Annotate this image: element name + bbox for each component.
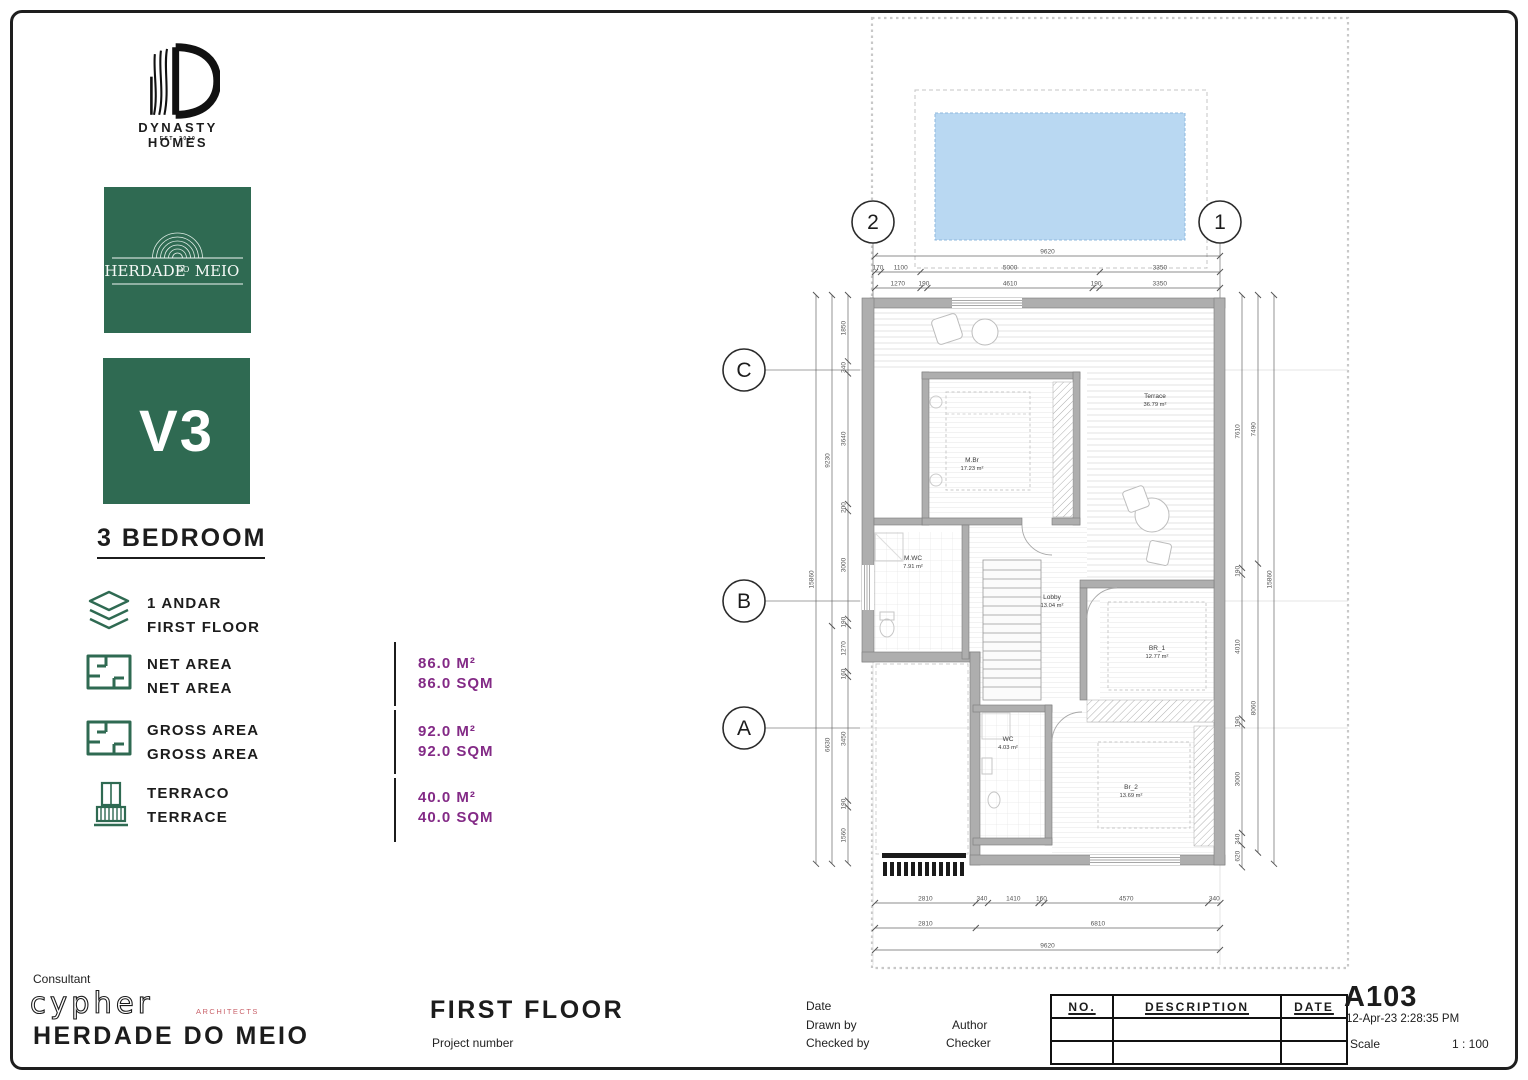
room-name: WC bbox=[1003, 736, 1014, 743]
dim-label: 1410 bbox=[1006, 896, 1021, 903]
grid-label-b: B bbox=[737, 590, 751, 613]
room-area: 7.91 m² bbox=[903, 564, 923, 570]
net-area-label-en: NET AREA bbox=[147, 677, 233, 701]
room-area: 13.69 m² bbox=[1120, 793, 1143, 799]
dim-label: 200 bbox=[841, 502, 848, 513]
room-area: 4.03 m² bbox=[998, 745, 1018, 751]
room-name: Br_2 bbox=[1124, 784, 1138, 791]
revision-row bbox=[1051, 1018, 1347, 1041]
room-name: M.WC bbox=[904, 555, 922, 562]
floor-label-pt: 1 ANDAR bbox=[147, 592, 222, 616]
dim-label: 170 bbox=[873, 265, 884, 272]
dim-label: 15860 bbox=[1267, 570, 1274, 588]
terrace-m2: 40.0 M² bbox=[418, 788, 476, 808]
room-area: 36.79 m² bbox=[1144, 402, 1167, 408]
room-name: Terrace bbox=[1144, 393, 1166, 400]
date-label: Date bbox=[806, 999, 831, 1013]
dim-label: 3000 bbox=[841, 557, 848, 572]
unit-type-block: 3 BEDROOM bbox=[97, 524, 266, 559]
drawing-sheet: DYNASTY HOMES EST. 2020 HERDADE DO MEIO … bbox=[0, 0, 1528, 1080]
unit-type-underline bbox=[97, 557, 265, 559]
grid-label-c: C bbox=[736, 359, 751, 382]
net-area-label-pt: NET AREA bbox=[147, 653, 233, 677]
void-outline bbox=[876, 664, 968, 854]
project-number-label: Project number bbox=[432, 1036, 513, 1050]
revision-row bbox=[1051, 1041, 1347, 1064]
dim-label: 1270 bbox=[841, 641, 848, 656]
dim-label: 1270 bbox=[891, 281, 906, 288]
terrace-label-en: TERRACE bbox=[147, 806, 228, 830]
floor-label-en: FIRST FLOOR bbox=[147, 616, 260, 640]
balcony-icon bbox=[92, 780, 130, 830]
net-area-m2: 86.0 M² bbox=[418, 654, 476, 674]
sheet-number: A103 bbox=[1344, 981, 1417, 1014]
floorplan-icon bbox=[84, 716, 134, 760]
room-area: 13.04 m² bbox=[1041, 603, 1064, 609]
dim-label: 3350 bbox=[1153, 265, 1168, 272]
dim-label: 7490 bbox=[1251, 422, 1258, 437]
checked-by-value: Checker bbox=[946, 1036, 991, 1050]
drawn-by-value: Author bbox=[952, 1018, 987, 1032]
dim-label: 160 bbox=[841, 668, 848, 679]
dim-label: 15860 bbox=[809, 570, 816, 588]
dim-label: 5000 bbox=[1003, 265, 1018, 272]
gross-area-sqm: 92.0 SQM bbox=[418, 742, 494, 762]
consultant-sub: ARCHITECTS bbox=[196, 1007, 258, 1016]
dim-label: 190 bbox=[841, 798, 848, 809]
dim-label: 2810 bbox=[918, 921, 933, 928]
terrace-divider bbox=[394, 778, 396, 842]
scale-value: 1 : 100 bbox=[1452, 1037, 1489, 1051]
dim-label: 190 bbox=[841, 616, 848, 627]
dim-label: 190 bbox=[1091, 281, 1102, 288]
room-area: 17.23 m² bbox=[961, 466, 984, 472]
room-area: 12.77 m² bbox=[1146, 654, 1169, 660]
room-name: M.Br bbox=[965, 457, 980, 464]
print-timestamp: 12-Apr-23 2:28:35 PM bbox=[1346, 1013, 1459, 1025]
logo-word-herdade: HERDADE bbox=[104, 262, 185, 280]
dim-label: 160 bbox=[1036, 896, 1047, 903]
revision-table: NO. DESCRIPTION DATE bbox=[1050, 994, 1348, 1065]
rev-desc-header: DESCRIPTION bbox=[1113, 995, 1281, 1018]
dim-label: 340 bbox=[976, 896, 987, 903]
vent-grille bbox=[882, 853, 966, 876]
dim-label: 1560 bbox=[841, 828, 848, 843]
stairs bbox=[983, 560, 1041, 700]
dim-label: 8060 bbox=[1251, 700, 1258, 715]
grid-label-2: 2 bbox=[867, 211, 879, 234]
gross-area-m2: 92.0 M² bbox=[418, 722, 476, 742]
terrace-label-pt: TERRACO bbox=[147, 782, 230, 806]
room-name: BR_1 bbox=[1149, 645, 1166, 652]
logo-word-do: DO bbox=[177, 265, 190, 274]
dynasty-homes-logo-icon bbox=[140, 42, 220, 120]
dim-label: 4570 bbox=[1119, 896, 1134, 903]
grid-label-a: A bbox=[737, 717, 751, 740]
footer-view-name: FIRST FLOOR bbox=[430, 996, 624, 1025]
dim-label: 340 bbox=[1209, 896, 1220, 903]
unit-badge: V3 bbox=[103, 358, 250, 504]
dim-label: 340 bbox=[841, 362, 848, 373]
gross-area-label-en: GROSS AREA bbox=[147, 743, 259, 767]
dim-label: 9620 bbox=[1040, 943, 1055, 950]
consultant-logo: cypher ARCHITECTS bbox=[28, 986, 258, 1024]
dim-label: 340 bbox=[1235, 833, 1242, 844]
rev-date-header: DATE bbox=[1281, 995, 1347, 1018]
gross-area-label-pt: GROSS AREA bbox=[147, 719, 259, 743]
dim-label: 2810 bbox=[918, 896, 933, 903]
dim-label: 3350 bbox=[1153, 281, 1168, 288]
consultant-label: Consultant bbox=[33, 972, 90, 986]
dim-label: 4010 bbox=[1235, 639, 1242, 654]
grid-label-1: 1 bbox=[1214, 211, 1226, 234]
dim-label: 190 bbox=[919, 281, 930, 288]
layers-icon bbox=[86, 588, 132, 636]
dim-label: 3000 bbox=[1235, 771, 1242, 786]
revision-header-row: NO. DESCRIPTION DATE bbox=[1051, 995, 1347, 1018]
dim-label: 3450 bbox=[841, 731, 848, 746]
dim-label: 9620 bbox=[1040, 249, 1055, 256]
development-logo: HERDADE DO MEIO bbox=[104, 187, 251, 333]
dim-label: 6630 bbox=[825, 737, 832, 752]
development-logo-art: HERDADE DO MEIO bbox=[104, 187, 251, 333]
dim-label: 620 bbox=[1235, 850, 1242, 861]
unit-type-heading: 3 BEDROOM bbox=[97, 524, 266, 553]
floor-plan: Terrace 36.79 m² M.Br 17.23 m² M.WC 7.91… bbox=[700, 10, 1360, 985]
dim-label: 4610 bbox=[1003, 281, 1018, 288]
floorplan-icon bbox=[84, 650, 134, 694]
footer-project-name: HERDADE DO MEIO bbox=[33, 1022, 309, 1051]
dim-label: 6810 bbox=[1091, 921, 1106, 928]
dim-label: 9230 bbox=[825, 453, 832, 468]
dim-label: 7610 bbox=[1235, 424, 1242, 439]
brand-established: EST. 2020 bbox=[118, 136, 238, 142]
logo-word-meio: MEIO bbox=[195, 262, 240, 280]
rev-no-header: NO. bbox=[1051, 995, 1113, 1018]
dim-label: 190 bbox=[1235, 565, 1242, 576]
terrace-sqm: 40.0 SQM bbox=[418, 808, 494, 828]
consultant-name: cypher bbox=[30, 986, 154, 1020]
net-area-sqm: 86.0 SQM bbox=[418, 674, 494, 694]
pool bbox=[935, 113, 1185, 240]
dim-label: 3640 bbox=[841, 431, 848, 446]
dim-label: 1850 bbox=[841, 321, 848, 336]
drawn-by-label: Drawn by bbox=[806, 1018, 857, 1032]
scale-label: Scale bbox=[1350, 1037, 1380, 1051]
gross-area-divider bbox=[394, 710, 396, 774]
brand-name: DYNASTY HOMES bbox=[118, 120, 238, 150]
net-area-divider bbox=[394, 642, 396, 706]
dim-label: 190 bbox=[1235, 716, 1242, 727]
room-name: Lobby bbox=[1043, 594, 1061, 601]
checked-by-label: Checked by bbox=[806, 1036, 869, 1050]
dim-label: 1100 bbox=[894, 265, 908, 272]
